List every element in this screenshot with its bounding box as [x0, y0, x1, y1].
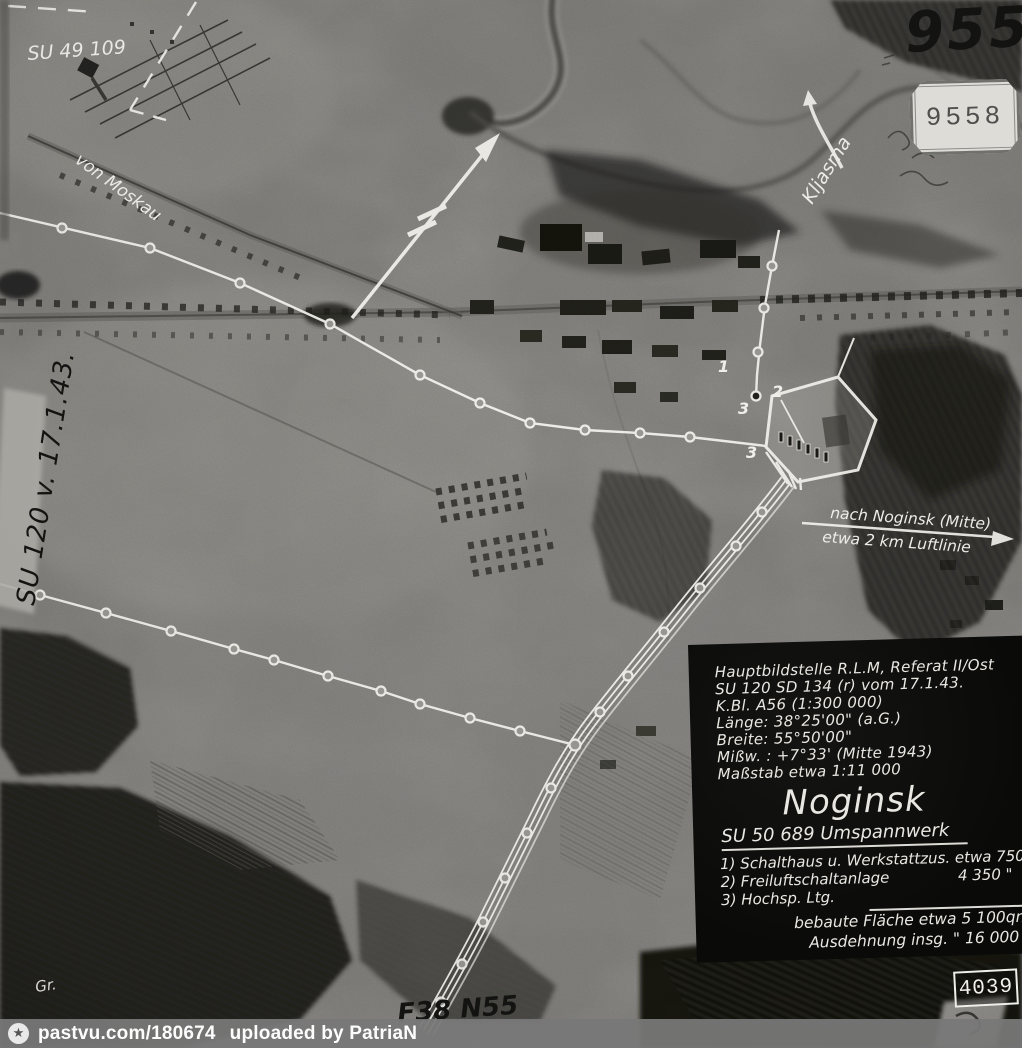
- target-subtitle: SU 50 689 Umspannwerk: [721, 820, 968, 851]
- archive-stamp-number: 4039: [958, 975, 1014, 1001]
- archive-label-number: 9558: [925, 101, 1004, 133]
- place-title: Noginsk: [782, 777, 1022, 824]
- watermark-credit: uploaded by PatriaN: [230, 1023, 418, 1045]
- star-in-circle-icon: ★: [8, 1023, 29, 1044]
- watermark-bar: ★ pastvu.com/180674 uploaded by PatriaN: [0, 1019, 1022, 1048]
- aerial-photo-page: SU 49 109 von Moskau Kljasma nach Nogins…: [0, 0, 1022, 1048]
- watermark-link[interactable]: pastvu.com/180674: [38, 1023, 216, 1045]
- archive-label-9558: 9558: [909, 79, 1021, 156]
- film-edge-shadow: [0, 0, 9, 240]
- info-panel: Hauptbildstelle R.L.M, Referat II/Ost SU…: [688, 636, 1022, 963]
- archive-stamp-4039: 4039: [953, 968, 1019, 1007]
